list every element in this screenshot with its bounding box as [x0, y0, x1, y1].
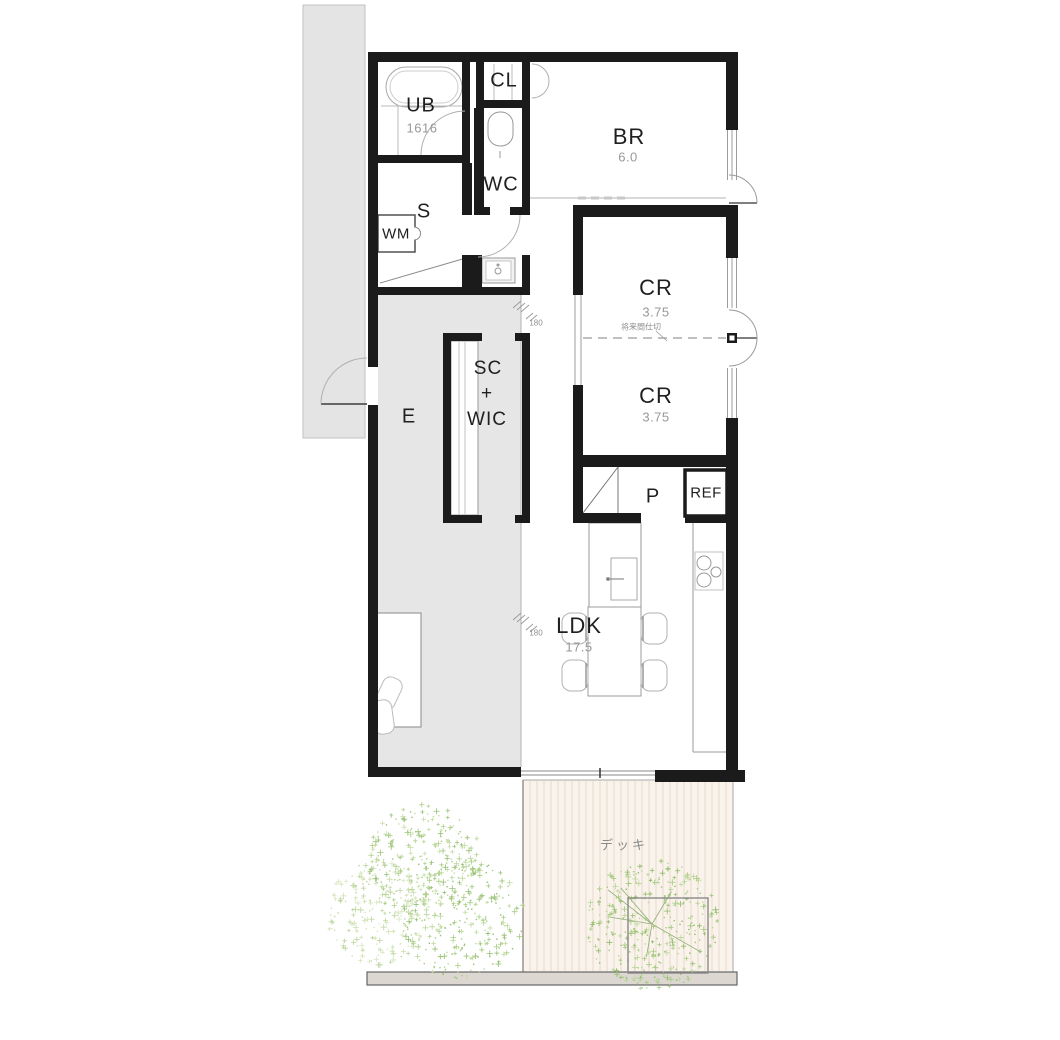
closet-shelf-lines — [494, 64, 512, 100]
tree — [402, 855, 525, 979]
toilet — [488, 112, 513, 158]
s-room-diagonal — [380, 258, 466, 283]
bathtub — [381, 67, 462, 155]
cr-thin-wall — [575, 295, 581, 385]
refrigerator — [685, 470, 727, 516]
wash-basin — [482, 258, 515, 283]
bedroom-door — [729, 175, 757, 203]
floor-plan: UB 1616 CL WC S WM BR 6.0 CR 3.75 将来間仕切 … — [0, 0, 1060, 1040]
chair — [562, 613, 588, 644]
bath-door — [421, 111, 465, 155]
closet-doors — [532, 64, 549, 98]
child-room-doors — [727, 310, 757, 366]
floor-plan-drawing — [0, 0, 1060, 1040]
sliding-door-deck — [521, 768, 655, 778]
chair — [562, 660, 588, 691]
shelf-unit — [451, 341, 478, 515]
kitchen-counter — [693, 523, 726, 752]
kitchen-island — [589, 523, 641, 608]
chair — [641, 660, 667, 691]
tree — [328, 860, 431, 968]
future-partition-line — [583, 331, 726, 341]
dining-table — [588, 607, 641, 696]
windows — [728, 130, 737, 418]
washing-machine — [378, 215, 421, 252]
dining-set — [562, 607, 667, 696]
desk — [371, 613, 421, 735]
wc-door — [478, 215, 520, 257]
pantry-shelf — [583, 467, 618, 513]
porch-strip — [303, 5, 365, 438]
chair — [641, 613, 667, 644]
